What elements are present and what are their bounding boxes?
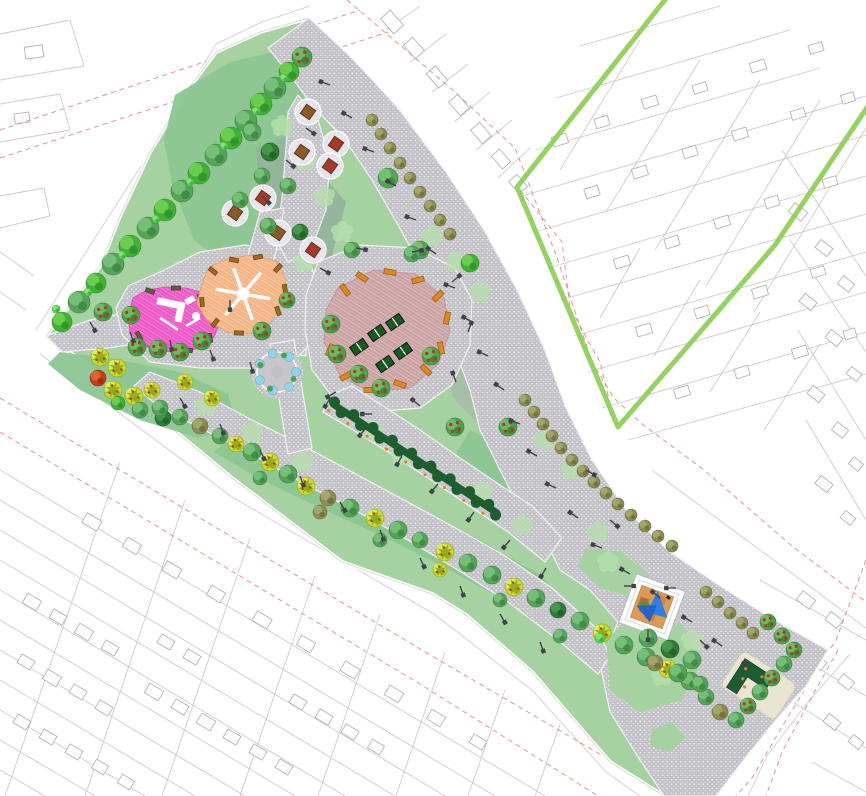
pergola-flower (443, 486, 446, 489)
tree-blossom (451, 430, 454, 433)
groundcover-leaf (567, 465, 577, 475)
tree-shade (260, 103, 269, 112)
tree-shade (400, 163, 405, 168)
tree-berry (666, 663, 668, 665)
tree-shade (224, 146, 227, 149)
tree-r (328, 345, 346, 363)
tree-y (108, 359, 126, 377)
tree-shade (287, 473, 294, 480)
tree-o (555, 442, 567, 454)
tree-blossom (750, 707, 753, 710)
tree-o (404, 172, 416, 184)
house-outline (381, 10, 404, 34)
tree-shade (543, 424, 548, 429)
house-outline (749, 59, 766, 73)
tree-berry (273, 462, 275, 464)
tree-blossom (332, 318, 335, 321)
tree-shade (251, 131, 258, 138)
house-outline (822, 176, 838, 189)
pergola-vine (445, 473, 456, 484)
tree-shade (288, 71, 296, 79)
tree-g (260, 218, 276, 234)
tree-blossom (256, 327, 259, 330)
house-outline (82, 513, 102, 531)
house-outline (42, 669, 61, 687)
playground-bench (172, 286, 181, 290)
pergola-vine (413, 458, 424, 469)
tree-o (724, 607, 736, 619)
tree-berry (215, 398, 217, 400)
parcel-line (0, 292, 26, 310)
tree-shade (783, 664, 789, 670)
tree-blossom (176, 355, 179, 358)
tree-s (220, 142, 228, 150)
tree-shade (199, 426, 205, 432)
tree-shade (349, 507, 356, 514)
house-outline (157, 634, 175, 650)
tree-o (320, 490, 336, 506)
tree-shade (557, 610, 563, 616)
tree-blossom (767, 674, 770, 677)
tree-o (600, 487, 612, 499)
tree-berry (188, 382, 190, 384)
tree-blossom (196, 337, 199, 340)
house-outline (252, 611, 272, 629)
tree-g (243, 443, 261, 461)
tree-berry (268, 456, 270, 458)
tree-berry (112, 370, 114, 372)
house-outline (162, 561, 182, 579)
tree-blossom (384, 389, 387, 392)
tree-blossom (795, 645, 798, 648)
house-outline (22, 593, 41, 611)
tree-berry (208, 399, 210, 401)
tree-shade (259, 478, 265, 484)
parcel-line (710, 312, 760, 392)
tree-berry (509, 589, 511, 591)
pergola-vine (490, 510, 501, 521)
tree-shade (97, 378, 103, 384)
tree-shade (284, 78, 287, 81)
pergola-flower (385, 448, 388, 451)
tree-blossom (355, 377, 358, 380)
house-outline (815, 239, 833, 256)
tree-r (350, 365, 368, 383)
tree-blossom (140, 348, 143, 351)
tree-shade (381, 134, 386, 139)
tree-shade (190, 182, 193, 185)
tree-shade (390, 148, 395, 153)
tree-shade (287, 186, 293, 192)
house-outline (296, 635, 315, 653)
tree-blossom (289, 301, 292, 304)
house-outline (635, 323, 652, 337)
house-outline (831, 422, 848, 438)
tree-blossom (744, 708, 747, 711)
tree-o (625, 509, 637, 521)
tree-blossom (161, 350, 164, 353)
groundcover-leaf (337, 227, 347, 237)
tree-g (253, 471, 267, 485)
tree-o (566, 454, 578, 466)
tree-shade (239, 200, 245, 206)
tree-o (313, 505, 327, 519)
tree-blossom (768, 680, 771, 683)
tree-blossom (769, 617, 772, 620)
tree-o (192, 418, 208, 434)
tree-berry (448, 552, 450, 554)
tree-g (728, 712, 744, 728)
tree-blossom (152, 345, 155, 348)
tree-shade (669, 648, 676, 655)
tree-y (433, 563, 447, 577)
tree-shade (742, 623, 747, 628)
tree-d (550, 602, 566, 618)
parcel-line (535, 724, 560, 796)
tree-shade (705, 697, 711, 703)
tree-blossom (327, 327, 330, 330)
tree-o (375, 128, 387, 140)
house-outline (713, 215, 730, 229)
tree-blossom (97, 308, 100, 311)
house-outline (613, 255, 630, 269)
tree-berry (378, 518, 380, 520)
house-outline (101, 640, 119, 656)
tree-g (571, 612, 589, 630)
tree-blossom (132, 309, 135, 312)
tree-shade (78, 301, 87, 310)
lamp-head (169, 347, 174, 352)
tree-blossom (203, 335, 206, 338)
groundcover-leaf (427, 231, 437, 241)
planting-tuft (267, 386, 273, 392)
tree-shade (499, 600, 505, 606)
tree-berry (234, 439, 236, 441)
pergola-flower (346, 422, 349, 425)
tree-berry (438, 565, 440, 567)
tree-r (764, 670, 780, 686)
house-outline (796, 591, 815, 610)
tree-rs (90, 370, 106, 386)
tree-b (111, 396, 125, 410)
pergola-vine (329, 396, 340, 407)
tree-r (292, 47, 312, 67)
groundcover-leaf (477, 487, 487, 497)
tree-g (232, 192, 248, 208)
tree-blossom (784, 637, 787, 640)
tree-o (537, 418, 549, 430)
tree-o (414, 186, 426, 198)
tree-berry (443, 546, 445, 548)
tree-g (243, 123, 261, 141)
tree-blossom (181, 346, 184, 349)
parcel-line (0, 20, 70, 34)
house-outline (449, 94, 470, 115)
lamp-head (632, 584, 636, 588)
tree-g (615, 636, 633, 654)
tree-shade (95, 282, 103, 290)
tree-r (760, 614, 776, 630)
tree-blossom (258, 334, 261, 337)
parcel-line (0, 188, 44, 196)
tree-o (736, 617, 748, 629)
house-outline (791, 345, 808, 359)
tree-o (546, 430, 558, 442)
tree-shade (117, 403, 123, 409)
house-outline (843, 328, 857, 340)
house-outline (95, 700, 113, 716)
groundcover-leaf (517, 520, 527, 530)
tree-r (422, 347, 440, 365)
tree-shade (467, 562, 474, 569)
house-outline (594, 115, 610, 129)
house-outline (584, 185, 600, 199)
tree-r (499, 418, 517, 436)
tree-shade (397, 529, 404, 536)
tree-berry (120, 368, 122, 370)
tree-shade (623, 644, 630, 651)
landscape-site-plan (0, 0, 866, 796)
tree-g (212, 428, 228, 444)
groundcover-leaf (451, 257, 461, 267)
tree-shade (525, 400, 530, 405)
tree-berry (183, 377, 185, 379)
tree-berry (115, 362, 117, 364)
tree-o (612, 498, 624, 510)
tree-blossom (127, 318, 130, 321)
lamp-head (646, 638, 650, 642)
tree-o (666, 540, 678, 552)
house-outline (734, 365, 750, 379)
tree-y (505, 578, 523, 596)
tree-shade (411, 254, 417, 260)
house-outline (825, 611, 843, 628)
tree-shade (88, 292, 91, 295)
tree-r (322, 315, 340, 333)
house-outline (799, 293, 817, 310)
tree-blossom (790, 652, 793, 655)
tree-o (424, 200, 436, 212)
tree-r (253, 322, 271, 340)
house-outline (367, 739, 384, 755)
tree-shade (112, 263, 121, 272)
parcel-line (654, 280, 700, 356)
house-outline (664, 235, 680, 249)
house-outline (848, 734, 864, 749)
tree-berry (309, 486, 311, 488)
tree-blossom (427, 359, 430, 362)
tree-blossom (104, 306, 107, 309)
tree-shade (299, 232, 305, 238)
tree-shade (572, 460, 577, 465)
tree-blossom (265, 332, 268, 335)
tree-blossom (743, 702, 746, 705)
tree-o (528, 406, 540, 418)
tree-shade (561, 448, 566, 453)
tree-blossom (783, 631, 786, 634)
tree-o (519, 394, 531, 406)
tree-berry (116, 390, 118, 392)
pergola-vine (483, 499, 494, 510)
tree-s (118, 251, 126, 259)
tree-d (261, 143, 279, 161)
planting-tuft (257, 362, 263, 368)
tree-blossom (174, 348, 177, 351)
parcel-line (0, 620, 295, 796)
tree-berry (111, 384, 113, 386)
tree-berry (108, 392, 110, 394)
planting-tuft (291, 376, 297, 382)
water-scallop (284, 382, 293, 391)
tree-blossom (432, 350, 435, 353)
tree-g (669, 664, 687, 682)
tree-blossom (749, 701, 752, 704)
house-outline (849, 457, 864, 471)
tree-g (752, 684, 768, 700)
pergola-flower (424, 473, 427, 476)
tree-shade (122, 255, 125, 258)
tree-r (94, 303, 112, 321)
tree-y (366, 509, 384, 527)
tree-g (683, 651, 701, 669)
tree-blossom (338, 348, 341, 351)
tree-berry (132, 390, 134, 392)
climbing-net-hub (237, 288, 250, 301)
parcel-line (812, 762, 866, 792)
tree-blossom (360, 368, 363, 371)
house-outline (840, 92, 855, 104)
tree-shade (164, 209, 173, 218)
pergola-flower (327, 409, 330, 412)
tree-r (774, 628, 790, 644)
tree-d (292, 224, 308, 240)
pergola-flower (481, 512, 484, 515)
tree-o (712, 704, 728, 720)
tree-shade (559, 636, 565, 642)
tree-shade (606, 493, 611, 498)
tree-shade (274, 87, 283, 96)
tree-shade (430, 206, 435, 211)
parcel-line (560, 40, 640, 170)
water-scallop (255, 376, 264, 385)
pergola-vine (464, 486, 475, 497)
house-outline (808, 42, 824, 55)
tree-shade (56, 309, 59, 312)
house-outline (206, 585, 225, 603)
tree-shade (319, 512, 325, 518)
tree-r (372, 379, 390, 397)
house-outline (196, 713, 215, 731)
tree-shade (579, 620, 586, 627)
tree-blossom (333, 357, 336, 360)
pergola-vine (451, 484, 462, 495)
tree-shade (159, 408, 165, 414)
tree-r (740, 698, 756, 714)
tree-shade (129, 245, 138, 254)
tree-blossom (458, 428, 461, 431)
house-outline (751, 285, 768, 299)
tree-shade (372, 120, 377, 125)
tree-shade (440, 220, 445, 225)
tree-shade (327, 498, 333, 504)
pergola-vine (425, 460, 436, 471)
lamp-head (360, 412, 364, 416)
tree-shade (618, 504, 623, 509)
tree-o (647, 655, 663, 671)
tree-g (459, 554, 477, 572)
parcel-line (0, 130, 70, 142)
water-scallop (268, 349, 277, 358)
tree-berry (210, 393, 212, 395)
house-outline (74, 623, 93, 641)
tree-berry (150, 385, 152, 387)
tree-g (527, 589, 545, 607)
tree-shade (706, 592, 711, 597)
tree-shade (198, 172, 207, 181)
tree-g (280, 178, 296, 194)
tree-blossom (288, 295, 291, 298)
parcel-line (628, 374, 866, 440)
tree-shade (600, 638, 604, 642)
tree-blossom (353, 370, 356, 373)
tree-blossom (773, 673, 776, 676)
tree-shade (251, 451, 258, 458)
tree-shade (215, 154, 224, 163)
tree-o (434, 214, 446, 226)
tree-o (366, 114, 378, 126)
tree-y (228, 436, 244, 452)
tree-shade (351, 250, 357, 256)
tree-s (280, 74, 288, 82)
parcel-line (0, 252, 34, 276)
tree-s (52, 305, 60, 313)
tree-shade (230, 137, 239, 146)
tree-shade (450, 234, 455, 239)
house-outline (117, 774, 134, 790)
tree-shade (645, 526, 650, 531)
tree-r (786, 642, 802, 658)
tree-o (712, 596, 724, 608)
tree-o (747, 627, 759, 639)
tree-g (152, 400, 168, 416)
tree-blossom (340, 355, 343, 358)
house-outline (249, 744, 267, 760)
tree-g (279, 465, 297, 483)
tree-r (171, 343, 189, 361)
tree-shade (139, 410, 145, 416)
tree-g (553, 629, 567, 643)
house-outline (790, 108, 806, 121)
tree-o (652, 530, 664, 542)
tree-s (595, 633, 605, 643)
house-outline (24, 45, 43, 59)
tree-shade (256, 111, 259, 114)
tree-blossom (134, 316, 137, 319)
parcel-line (655, 80, 760, 250)
park-master-plan-canvas (0, 0, 866, 796)
parcel-line (0, 216, 50, 228)
tree-o (639, 520, 651, 532)
playground-bench (200, 297, 205, 306)
groundcover-leaf (247, 427, 257, 437)
house-outline (223, 729, 241, 745)
tree-s (152, 215, 160, 223)
tree-o (444, 228, 456, 240)
tree-berry (440, 554, 442, 556)
pergola-vine (432, 471, 443, 482)
parcel-line (60, 94, 70, 130)
tree-blossom (382, 382, 385, 385)
